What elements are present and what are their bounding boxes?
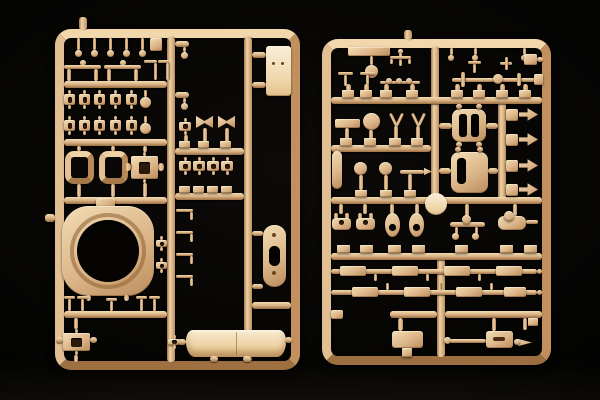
right-sprue-disc-60 — [354, 162, 367, 175]
left-sprue-bar-49 — [143, 183, 147, 197]
left-sprue-pin-17 — [107, 38, 114, 57]
left-sprue-tee-57 — [77, 296, 88, 311]
right-sprue-bar-131 — [438, 283, 441, 290]
right-sprue-runner-h311l — [390, 311, 437, 318]
left-sprue-pin-19 — [139, 38, 146, 57]
left-sprue-bar-91 — [178, 339, 186, 345]
right-sprue-pin-28 — [472, 48, 478, 61]
right-sprue-wheel-disc — [425, 193, 447, 215]
right-sprue-disc-62 — [379, 162, 392, 175]
right-sprue-bar-77 — [439, 123, 452, 129]
left-sprue-clip-78 — [221, 157, 233, 175]
right-sprue-bar-81 — [455, 147, 461, 152]
left-sprue-block-part — [131, 152, 158, 183]
photo-canvas — [0, 0, 600, 400]
right-sprue-bar-73 — [456, 104, 462, 109]
left-sprue-fender-strip — [186, 330, 286, 357]
right-sprue-part-25 — [380, 90, 392, 98]
left-sprue-bar-65 — [74, 355, 78, 362]
right-sprue-bar-139 — [450, 339, 486, 343]
left-sprue-bench-24 — [104, 60, 141, 81]
right-sprue-bar-84 — [488, 168, 498, 174]
right-sprue-part-111 — [388, 245, 401, 253]
right-sprue-dot-141 — [493, 337, 505, 341]
right-sprue-part-110 — [360, 245, 373, 253]
left-sprue-dot-97 — [281, 62, 284, 65]
right-sprue-part-32 — [524, 54, 537, 65]
left-sprue-runner-v2 — [244, 37, 252, 362]
right-sprue-part-146 — [528, 318, 538, 326]
right-sprue-part-128 — [456, 287, 482, 297]
left-sprue-clip-31 — [126, 90, 137, 109]
right-sprue-runner-h97 — [331, 97, 542, 104]
left-sprue-hook-86 — [176, 275, 193, 286]
right-sprue-disc-17 — [396, 78, 402, 84]
right-sprue-tow-hook — [356, 213, 375, 230]
right-sprue-part-57 — [389, 138, 401, 146]
right-sprue-clasp-arrow — [506, 158, 538, 173]
left-sprue-bar-63 — [90, 337, 97, 343]
right-sprue-black-80 — [457, 158, 466, 184]
left-sprue-runner-v1 — [167, 37, 175, 362]
right-sprue-part-56 — [364, 138, 376, 146]
left-sprue-runner-h2 — [64, 139, 167, 146]
left-sprue-runner-h1 — [64, 81, 167, 88]
right-sprue-bar-108 — [526, 220, 538, 224]
right-sprue-bar-132 — [490, 283, 493, 290]
right-sprue-part-46 — [519, 90, 531, 98]
left-sprue-hook-85 — [176, 253, 193, 264]
right-sprue-disc-103 — [452, 233, 459, 240]
left-sprue-pin-16 — [91, 38, 98, 57]
right-sprue-part-43 — [451, 90, 463, 98]
right-sprue-part-134 — [331, 310, 343, 319]
left-sprue-pin-32 — [140, 90, 151, 108]
left-sprue-bar-102 — [252, 231, 263, 236]
right-sprue-bar-123 — [478, 274, 481, 281]
right-sprue-hatch-frame-double — [452, 109, 486, 142]
right-sprue-clasp-arrow — [506, 107, 538, 122]
right-sprue-part-117 — [340, 266, 366, 276]
right-sprue-clasp-arrow — [506, 132, 538, 147]
right-sprue-part-113 — [455, 245, 468, 253]
left-sprue-dot-101 — [272, 271, 276, 275]
right-sprue-disc-104 — [472, 233, 479, 240]
left-sprue-clip-75 — [179, 157, 191, 175]
left-sprue-hook-26 — [158, 60, 169, 80]
left-sprue-square-bracket — [63, 329, 90, 355]
right-sprue-part-23 — [342, 90, 354, 98]
left-sprue-bar-44 — [111, 184, 115, 197]
left-sprue-clip-33 — [64, 116, 75, 135]
right-sprue-bar-63 — [384, 175, 388, 190]
right-sprue-bar-78 — [486, 123, 498, 129]
left-sprue-bar-46 — [125, 163, 131, 171]
right-sprue-part-118 — [392, 266, 418, 276]
left-sprue-ring-clamp — [99, 151, 128, 184]
right-sprue-runner-h145 — [331, 145, 431, 152]
right-sprue-part-69 — [404, 190, 416, 197]
left-sprue-part-80 — [193, 186, 204, 193]
right-sprue-tee-30 — [468, 61, 481, 73]
left-sprue-black-99 — [269, 246, 280, 266]
right-sprue-part-115 — [524, 245, 537, 253]
right-sprue-part-10 — [348, 47, 390, 56]
left-sprue-part-81 — [207, 186, 218, 193]
right-sprue-bar-124 — [537, 269, 542, 274]
left-sprue-part-74 — [220, 141, 231, 148]
right-sprue-bar-133 — [537, 290, 542, 295]
left-sprue-dot-100 — [272, 233, 276, 237]
right-sprue-bar-142 — [492, 318, 496, 331]
right-sprue-bar-35 — [461, 72, 465, 87]
left-sprue-hook-83 — [176, 209, 193, 220]
right-sprue-part-119 — [444, 266, 470, 276]
left-sprue-hook-25 — [144, 60, 157, 80]
right-sprue-disc-49 — [363, 113, 380, 130]
right-sprue-runner-vdiv-top — [431, 47, 439, 201]
left-sprue-hook-84 — [176, 231, 193, 242]
left-sprue-hull-plate — [266, 46, 291, 96]
left-sprue-bar-47 — [158, 163, 164, 171]
left-sprue-part-20 — [150, 38, 162, 51]
left-sprue-runner-h3 — [64, 197, 167, 204]
left-sprue-turret-ring-hole — [77, 220, 139, 282]
right-sprue-anchor-12 — [390, 49, 411, 66]
right-sprue-disc-36 — [493, 74, 503, 84]
left-sprue-clip-30 — [110, 90, 121, 109]
right-sprue-part-58 — [411, 138, 423, 146]
right-sprue-runner-h311r — [445, 311, 542, 318]
right-sprue-plus-31 — [500, 57, 512, 70]
right-sprue-stowage-box — [392, 331, 423, 348]
right-sprue-part-47 — [335, 119, 360, 128]
left-sprue-part-72 — [179, 141, 190, 148]
right-sprue-tow-shackle — [385, 213, 400, 237]
right-sprue-part-59 — [332, 151, 342, 189]
right-sprue-disc-100 — [462, 215, 471, 224]
right-sprue-part-38 — [534, 74, 543, 85]
left-sprue-gate-stub — [79, 17, 87, 30]
left-sprue-bracket-pin — [181, 98, 188, 110]
left-sprue-part-79 — [179, 186, 190, 193]
left-sprue-ring-clamp — [65, 151, 94, 184]
left-sprue-bar-64 — [74, 318, 78, 329]
left-sprue-bar-92 — [285, 337, 292, 343]
right-sprue-bar-121 — [374, 274, 377, 281]
right-sprue-vee-53 — [410, 112, 426, 126]
right-sprue-bar-64 — [400, 170, 424, 174]
left-sprue-clip-66 — [179, 118, 191, 135]
left-sprue-pin-18 — [123, 38, 130, 57]
right-sprue-bar-33 — [537, 57, 543, 62]
left-sprue-tee-59 — [136, 296, 147, 311]
left-sprue-part-73 — [198, 141, 209, 148]
left-sprue-clip-76 — [193, 157, 205, 175]
left-sprue-clip-28 — [79, 90, 90, 109]
left-sprue-clip-87 — [156, 236, 167, 251]
left-sprue-stub — [252, 52, 266, 58]
left-sprue-clip-36 — [110, 116, 121, 135]
left-sprue-bar-94 — [243, 356, 251, 362]
left-sprue-pin-15 — [75, 38, 82, 57]
right-sprue-bar-82 — [477, 147, 483, 152]
right-sprue-part-67 — [355, 190, 367, 197]
left-sprue-clip-29 — [94, 90, 105, 109]
right-sprue-bar-37 — [517, 73, 521, 86]
right-sprue-black-71 — [459, 114, 467, 137]
left-sprue-tee-60 — [149, 296, 160, 311]
left-sprue-part-82 — [221, 186, 232, 193]
left-sprue-bar-55 — [124, 295, 129, 301]
left-sprue-tee-56 — [64, 296, 75, 311]
right-sprue-part-55 — [340, 138, 352, 146]
left-sprue-runner-h7 — [252, 302, 291, 309]
right-sprue-gate-stub — [404, 30, 412, 40]
left-sprue-bar-62 — [56, 337, 63, 343]
left-sprue-bar-48 — [143, 146, 147, 152]
left-sprue-gate-stub — [45, 214, 55, 222]
right-sprue-part-114 — [500, 245, 513, 253]
right-sprue-part-45 — [496, 90, 508, 98]
left-sprue-stub — [252, 82, 266, 88]
left-sprue-clip-27 — [64, 90, 75, 109]
left-sprue-pin-38 — [140, 116, 151, 134]
right-sprue-runner-h253 — [331, 253, 542, 260]
right-sprue-vee-51 — [388, 112, 404, 126]
left-sprue-clip-77 — [207, 157, 219, 175]
left-sprue-tee-58 — [106, 298, 117, 311]
right-sprue-part-127 — [404, 287, 430, 297]
left-sprue-clip-88 — [156, 258, 167, 273]
left-sprue-bar-41 — [77, 146, 81, 151]
left-sprue-bar-93 — [210, 356, 218, 362]
right-sprue-runner-vright — [498, 102, 506, 201]
right-sprue-part-24 — [360, 90, 372, 98]
left-sprue-runner-h4 — [64, 311, 167, 318]
right-sprue-bar-122 — [426, 274, 429, 281]
right-sprue-part-137 — [402, 348, 412, 357]
right-sprue-part-44 — [473, 90, 485, 98]
right-sprue-part-68 — [380, 190, 392, 197]
left-sprue-bar-43 — [111, 146, 115, 151]
right-sprue-bar-145 — [523, 318, 527, 330]
left-sprue-bar-42 — [77, 184, 81, 197]
right-sprue-part-112 — [412, 245, 425, 253]
right-sprue-bar-135 — [398, 318, 403, 331]
left-sprue-dot-96 — [272, 62, 275, 65]
right-sprue-part-109 — [337, 245, 350, 253]
left-sprue-runner-h5 — [175, 148, 244, 155]
left-sprue-clip-35 — [94, 116, 105, 135]
right-sprue-part-126 — [352, 287, 378, 297]
right-sprue-bar-61 — [359, 175, 363, 190]
right-sprue-black-72 — [471, 114, 479, 137]
right-sprue-part-129 — [504, 287, 526, 297]
right-sprue-bar-74 — [476, 104, 482, 109]
left-sprue-bench-23 — [64, 60, 101, 81]
left-sprue-clip-34 — [79, 116, 90, 135]
right-sprue-bar-83 — [439, 168, 451, 174]
left-sprue-runner-h6 — [175, 193, 244, 200]
right-sprue-tow-shackle — [409, 213, 424, 237]
left-sprue-bar-103 — [252, 284, 263, 289]
right-sprue-pin-27 — [448, 48, 454, 61]
right-sprue-tee-13 — [338, 72, 353, 86]
right-sprue-disc-144 — [514, 339, 520, 345]
left-sprue-clip-37 — [126, 116, 137, 135]
right-sprue-clasp-arrow — [506, 182, 538, 197]
left-sprue-bracket-pin — [181, 47, 188, 59]
right-sprue-tow-hook — [332, 213, 351, 230]
right-sprue-part-26 — [406, 90, 418, 98]
right-sprue-bar-66 — [408, 174, 412, 190]
right-sprue-part-120 — [496, 266, 522, 276]
right-sprue-disc-107 — [504, 211, 514, 221]
right-sprue-bar-130 — [386, 283, 389, 290]
